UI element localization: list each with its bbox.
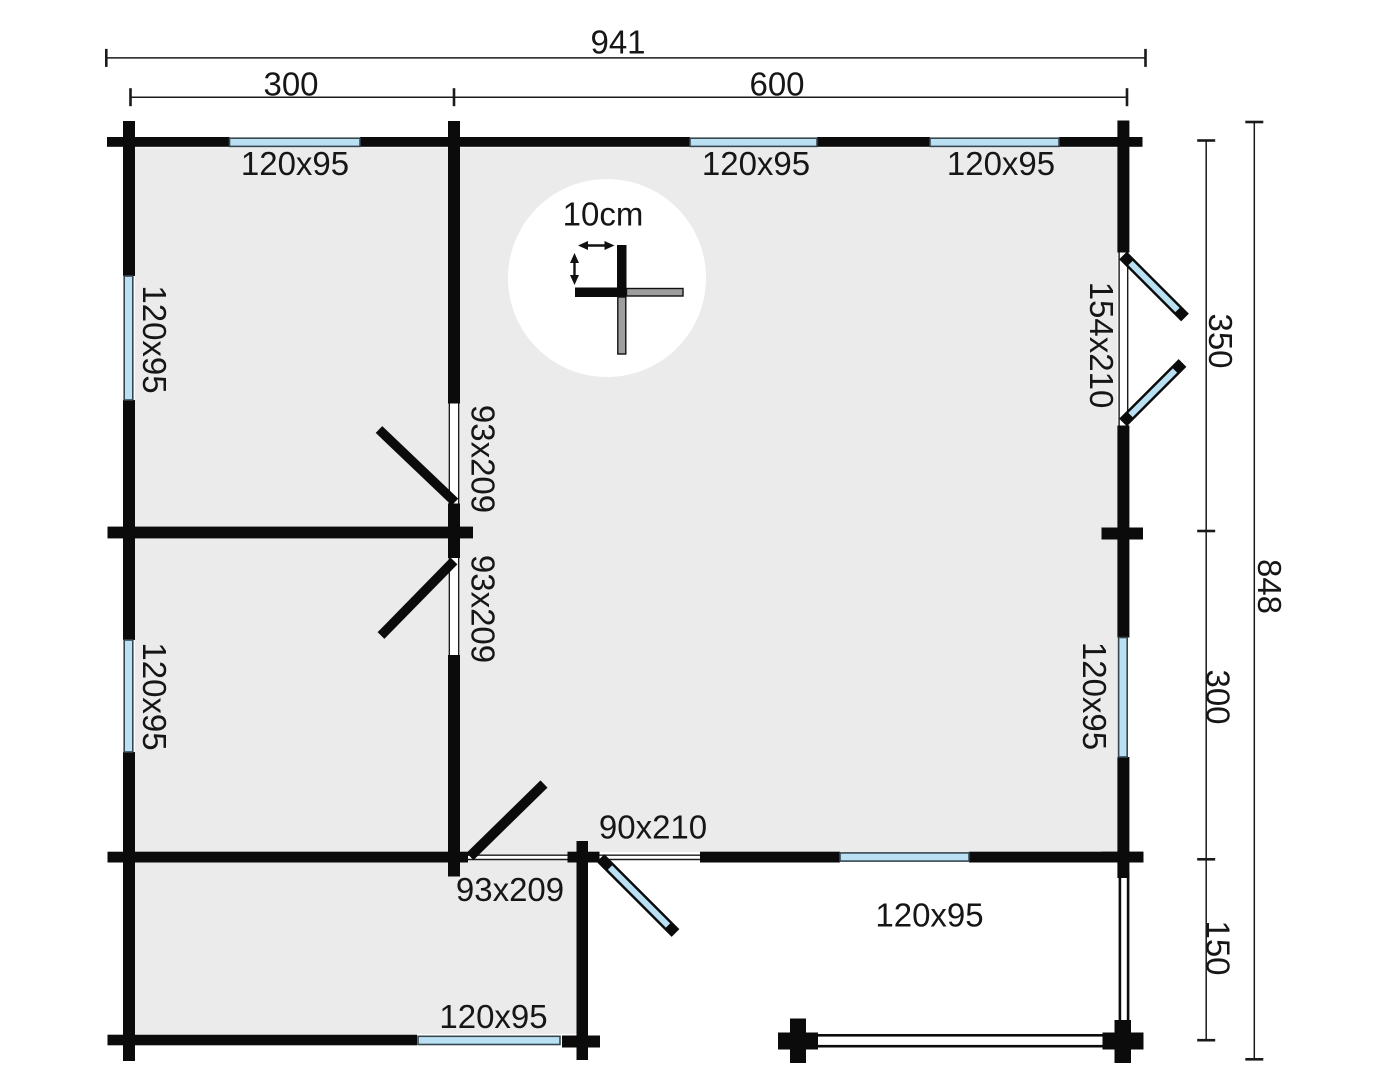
svg-text:120x95: 120x95 bbox=[241, 145, 349, 182]
svg-text:941: 941 bbox=[590, 24, 645, 61]
svg-text:600: 600 bbox=[749, 66, 804, 103]
svg-text:350: 350 bbox=[1202, 313, 1239, 368]
svg-text:120x95: 120x95 bbox=[136, 642, 173, 750]
svg-text:120x95: 120x95 bbox=[875, 897, 983, 934]
svg-text:154x210: 154x210 bbox=[1083, 282, 1120, 409]
svg-text:10cm: 10cm bbox=[563, 196, 644, 233]
svg-text:93x209: 93x209 bbox=[465, 555, 502, 663]
svg-text:120x95: 120x95 bbox=[136, 285, 173, 393]
svg-text:300: 300 bbox=[263, 66, 318, 103]
svg-text:120x95: 120x95 bbox=[439, 998, 547, 1035]
svg-text:120x95: 120x95 bbox=[947, 145, 1055, 182]
svg-text:300: 300 bbox=[1200, 669, 1237, 724]
svg-text:90x210: 90x210 bbox=[599, 809, 707, 846]
svg-text:120x95: 120x95 bbox=[702, 145, 810, 182]
svg-text:848: 848 bbox=[1251, 559, 1288, 614]
svg-text:93x209: 93x209 bbox=[456, 871, 564, 908]
svg-text:150: 150 bbox=[1200, 920, 1237, 975]
svg-text:120x95: 120x95 bbox=[1076, 642, 1113, 750]
svg-text:93x209: 93x209 bbox=[465, 405, 502, 513]
